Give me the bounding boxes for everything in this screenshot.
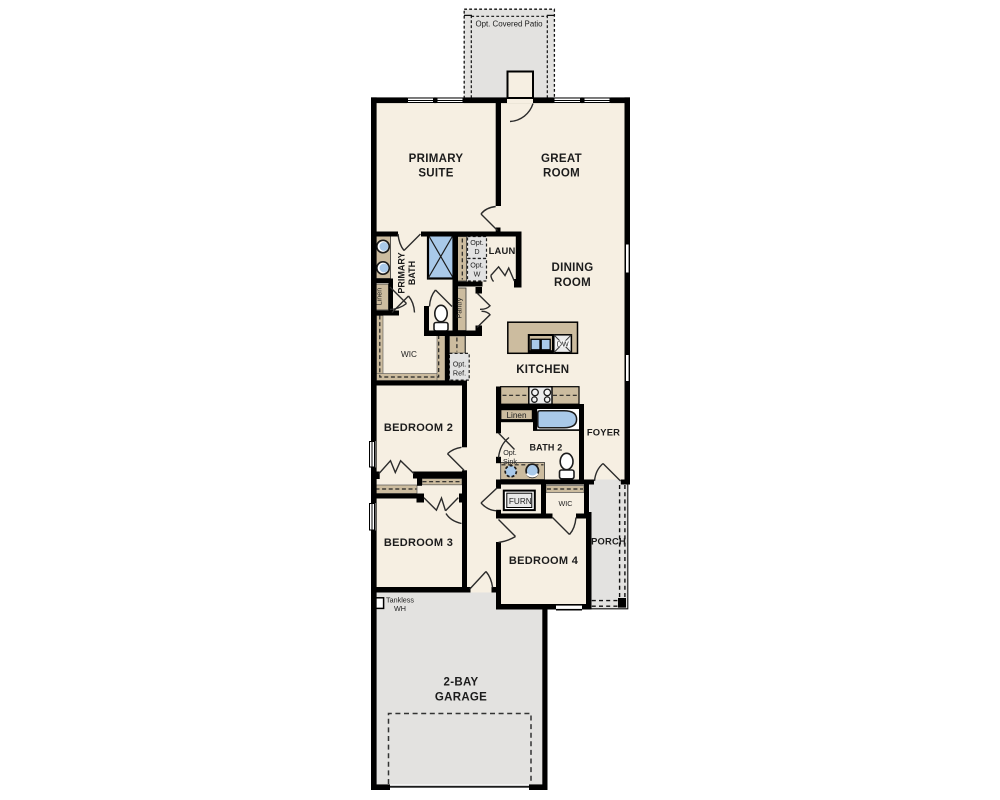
svg-text:PRIMARY: PRIMARY xyxy=(397,252,407,293)
svg-text:KITCHEN: KITCHEN xyxy=(516,364,569,376)
svg-text:W: W xyxy=(474,270,481,279)
svg-text:Opt. Covered Patio: Opt. Covered Patio xyxy=(475,19,543,28)
svg-text:ROOM: ROOM xyxy=(554,277,591,289)
svg-text:GARAGE: GARAGE xyxy=(435,692,487,704)
svg-text:Opt.: Opt. xyxy=(470,238,484,247)
svg-text:Opt.: Opt. xyxy=(470,261,484,270)
svg-text:Sink: Sink xyxy=(503,457,517,466)
svg-text:BEDROOM 3: BEDROOM 3 xyxy=(384,537,453,549)
svg-text:LAUN: LAUN xyxy=(489,245,516,256)
svg-text:Ref.: Ref. xyxy=(453,369,466,378)
svg-text:SUITE: SUITE xyxy=(418,168,453,180)
svg-text:DINING: DINING xyxy=(551,262,593,274)
svg-text:WIC: WIC xyxy=(559,499,573,508)
svg-text:Linen: Linen xyxy=(506,411,526,420)
svg-text:ROOM: ROOM xyxy=(543,168,580,180)
svg-text:BATH: BATH xyxy=(407,261,417,285)
svg-text:FURN: FURN xyxy=(509,497,532,506)
svg-text:BEDROOM 2: BEDROOM 2 xyxy=(384,422,453,434)
svg-text:FOYER: FOYER xyxy=(587,427,620,438)
svg-text:Opt.: Opt. xyxy=(503,448,517,457)
svg-text:PRIMARY: PRIMARY xyxy=(409,153,464,165)
svg-text:BATH 2: BATH 2 xyxy=(529,443,562,453)
svg-text:PORCH: PORCH xyxy=(591,536,626,547)
svg-text:Pantry: Pantry xyxy=(455,297,464,318)
svg-text:WIC: WIC xyxy=(401,350,417,359)
svg-text:2-BAY: 2-BAY xyxy=(444,677,479,689)
svg-text:Linen: Linen xyxy=(375,288,384,306)
svg-text:WH: WH xyxy=(394,604,406,613)
svg-text:DW: DW xyxy=(557,339,569,348)
svg-text:Opt.: Opt. xyxy=(453,360,467,369)
svg-text:D: D xyxy=(474,247,479,256)
svg-text:GREAT: GREAT xyxy=(541,153,582,165)
svg-text:BEDROOM 4: BEDROOM 4 xyxy=(509,555,579,567)
